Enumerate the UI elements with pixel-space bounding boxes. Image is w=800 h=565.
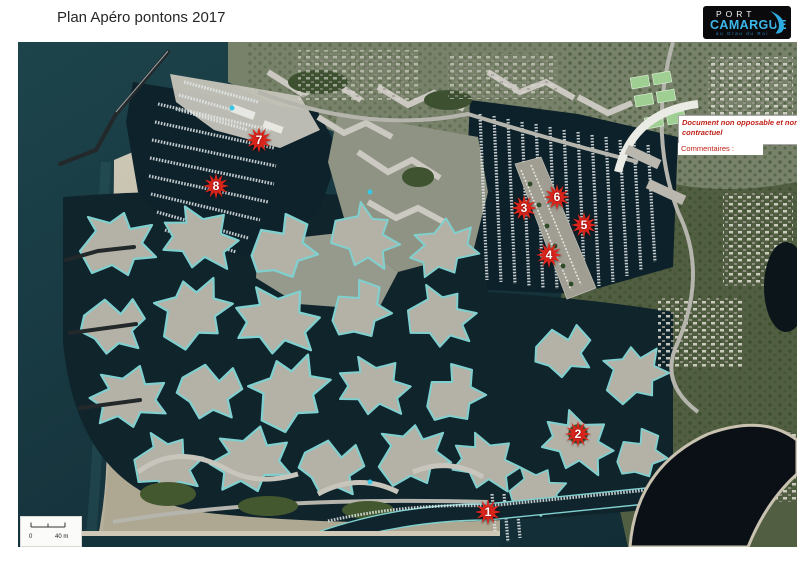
page-title: Plan Apéro pontons 2017 (57, 9, 225, 26)
logo-sail-swoosh-icon (768, 10, 787, 35)
marker-number: 4 (536, 242, 562, 268)
scale-min: 0 (29, 534, 33, 540)
map-marker-4: 4 (536, 242, 562, 268)
scale-box: 0 40 m (20, 516, 82, 547)
marker-number: 8 (203, 173, 229, 199)
port-camargue-logo: PORT CAMARGUE au Grau du Roi (703, 6, 791, 39)
marker-number: 2 (565, 421, 591, 447)
map-marker-8: 8 (203, 173, 229, 199)
disclaimer-box: Document non opposable et non contractue… (678, 115, 797, 145)
scale-bar: 0 40 m (21, 517, 81, 546)
disclaimer-text: Document non opposable et non contractue… (682, 118, 797, 137)
map-marker-1: 1 (475, 499, 501, 525)
scale-max: 40 m (55, 534, 68, 540)
map-marker-5: 5 (571, 212, 597, 238)
map-marker-3: 3 (511, 195, 537, 221)
marker-number: 5 (571, 212, 597, 238)
satellite-map: 1 2 3 4 5 6 7 8 D (18, 42, 797, 547)
marker-number: 7 (246, 127, 272, 153)
marker-number: 3 (511, 195, 537, 221)
marker-number: 1 (475, 499, 501, 525)
plan-page: Plan Apéro pontons 2017 PORT CAMARGUE au… (0, 0, 800, 565)
logo-tagline: au Grau du Roi (716, 31, 769, 36)
map-marker-2: 2 (565, 421, 591, 447)
map-marker-6: 6 (544, 184, 570, 210)
comments-label: Commentaires : (678, 143, 763, 155)
marker-number: 6 (544, 184, 570, 210)
map-marker-7: 7 (246, 127, 272, 153)
